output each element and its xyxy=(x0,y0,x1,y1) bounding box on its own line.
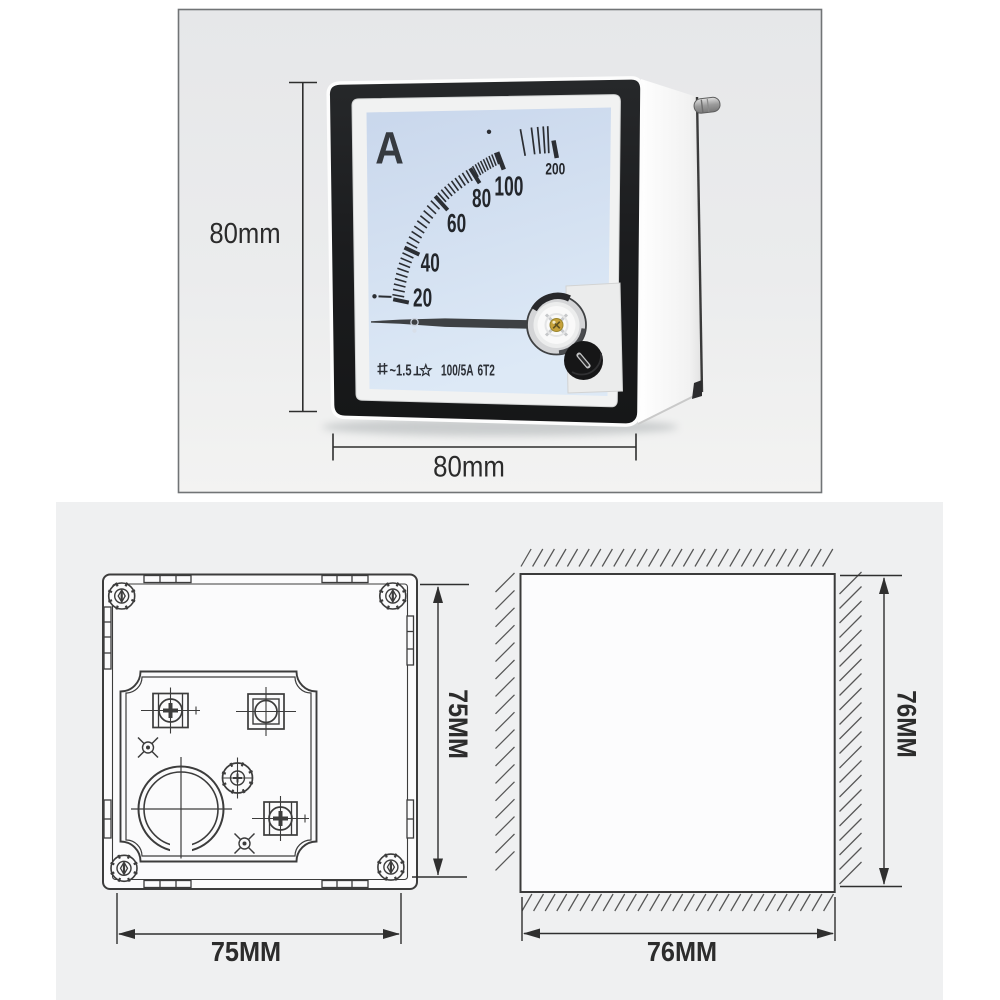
svg-text:75MM: 75MM xyxy=(443,689,474,759)
svg-text:200: 200 xyxy=(545,161,565,180)
svg-text:40: 40 xyxy=(421,248,440,278)
svg-text:~1.5: ~1.5 xyxy=(390,362,412,379)
svg-text:76MM: 76MM xyxy=(891,690,920,757)
svg-text:A: A xyxy=(375,123,404,173)
svg-text:80mm: 80mm xyxy=(209,217,280,250)
svg-text:80: 80 xyxy=(472,183,491,213)
svg-text:60: 60 xyxy=(447,208,466,238)
svg-text:75MM: 75MM xyxy=(211,936,281,967)
svg-text:6T2: 6T2 xyxy=(478,361,495,379)
svg-text:76MM: 76MM xyxy=(647,936,717,967)
svg-text:100/5A: 100/5A xyxy=(441,361,474,379)
svg-text:100: 100 xyxy=(494,170,523,201)
svg-text:20: 20 xyxy=(413,283,432,313)
svg-text:80mm: 80mm xyxy=(433,450,505,483)
